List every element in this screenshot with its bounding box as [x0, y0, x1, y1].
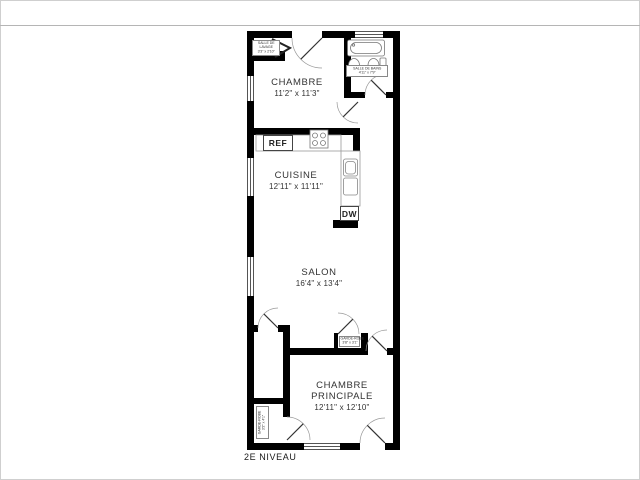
door-swing-garderobe-hall — [338, 313, 359, 334]
cuisine-dims: 12'11" x 11'11" — [256, 182, 336, 191]
laundry-dims: 3'3" x 2'10" — [257, 50, 274, 54]
door-swing-nook — [366, 330, 387, 351]
room-label-chambre: CHAMBRE 11'2" x 11'3" — [257, 77, 337, 98]
garderobe-hall-callout: GARDE-ROBE 3'8" x 3'1" — [339, 336, 360, 347]
floor-plan: REF DW SALLE DE LAVAGE 3'3" x 2'10" SALL… — [247, 31, 400, 450]
room-label-chambre-principale: CHAMBRE PRINCIPALE 12'11" x 12'10" — [302, 380, 382, 412]
chambre-name: CHAMBRE — [257, 77, 337, 88]
room-label-cuisine: CUISINE 12'11" x 11'11" — [256, 170, 336, 191]
door-swing-chambre-entry — [292, 38, 322, 68]
salon-name: SALON — [279, 267, 359, 278]
chambre-principale-line2: PRINCIPALE — [302, 391, 382, 402]
garderobe-corridor-dims: 3'2" x 4'1" — [263, 411, 267, 435]
chambre-dims: 11'2" x 11'3" — [257, 89, 337, 98]
stove-icon — [310, 130, 328, 148]
door-swing-bathroom — [365, 74, 386, 95]
horizontal-rule — [0, 25, 640, 26]
dishwasher-label: DW — [342, 209, 357, 219]
door-swing-corridor-cp — [287, 417, 310, 440]
bathroom-dims: 4'11" x 7'9" — [353, 71, 381, 75]
door-swing-cp-bottom — [360, 418, 385, 443]
bathroom-callout: SALLE DE BAINS 4'11" x 7'9" — [346, 65, 388, 77]
bathroom-name: SALLE DE BAINS — [353, 67, 381, 71]
garderobe-corridor-callout: GARDE-ROBE 3'2" x 4'1" — [256, 406, 269, 439]
door-swing-chambre-hall — [337, 102, 358, 123]
bathtub-icon — [348, 40, 385, 56]
door-swing-salon-corridor — [258, 308, 278, 328]
refrigerator: REF — [263, 135, 293, 151]
refrigerator-label: REF — [269, 138, 288, 148]
floor-title: 2E NIVEAU — [244, 452, 296, 462]
salon-dims: 16'4" x 13'4" — [279, 279, 359, 288]
room-label-salon: SALON 16'4" x 13'4" — [279, 267, 359, 288]
laundry-callout: SALLE DE LAVAGE 3'3" x 2'10" — [252, 40, 280, 56]
chambre-principale-line1: CHAMBRE — [302, 380, 382, 391]
cuisine-name: CUISINE — [256, 170, 336, 181]
dishwasher: DW — [340, 206, 359, 221]
chambre-principale-dims: 12'11" x 12'10" — [302, 403, 382, 412]
garderobe-hall-dims: 3'8" x 3'1" — [340, 342, 359, 346]
